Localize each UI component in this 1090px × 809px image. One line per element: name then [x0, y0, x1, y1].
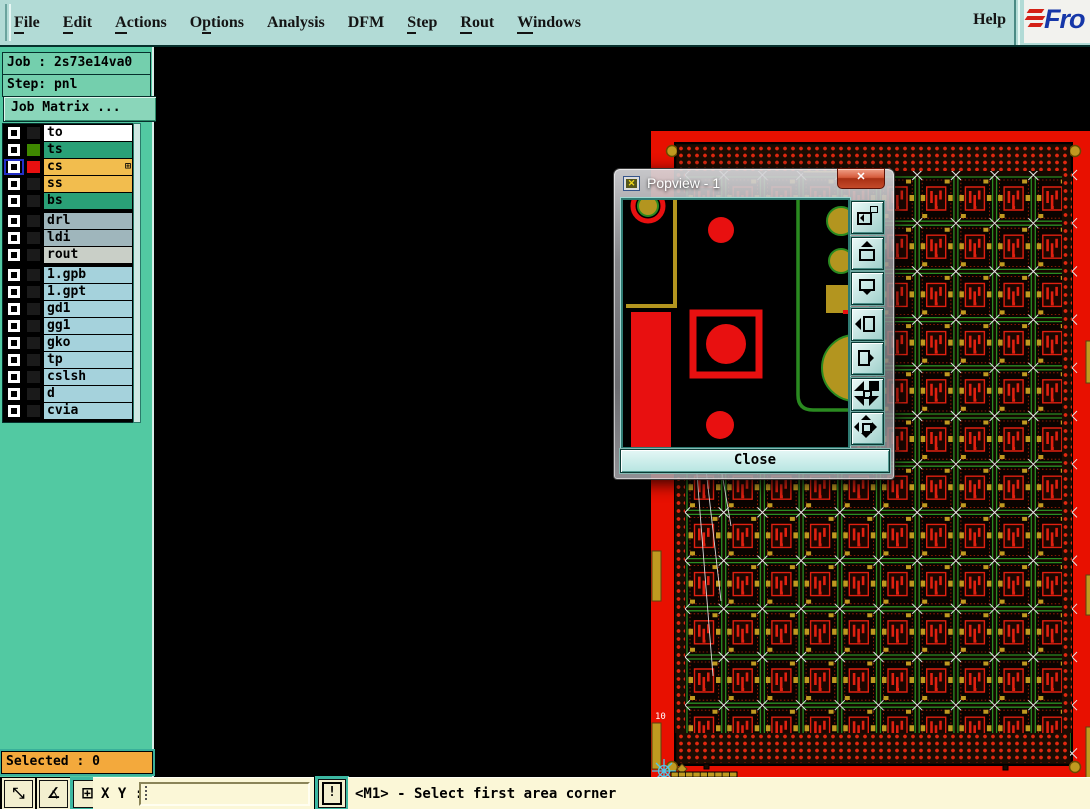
- layer-group: 1.gpb1.gptgd1gg1gkotpcslshdcvia: [4, 267, 132, 421]
- layer-color-swatch[interactable]: [24, 369, 44, 385]
- layer-visibility-checkbox[interactable]: [4, 159, 24, 175]
- measure-angle-button[interactable]: ∡: [39, 780, 68, 808]
- prompt-panel: <M1> - Select first area corner: [348, 777, 1090, 809]
- layer-visibility-checkbox[interactable]: [4, 403, 24, 419]
- layer-row-ss[interactable]: ss: [4, 176, 132, 192]
- layer-row-1.gpt[interactable]: 1.gpt: [4, 284, 132, 300]
- popview-close-button[interactable]: Close: [620, 449, 890, 473]
- layer-name[interactable]: gg1: [44, 318, 132, 334]
- layer-visibility-checkbox[interactable]: [4, 125, 24, 141]
- layer-row-to[interactable]: to: [4, 125, 132, 141]
- layer-row-cslsh[interactable]: cslsh: [4, 369, 132, 385]
- open-in-window-button[interactable]: [851, 201, 884, 234]
- layer-visibility-checkbox[interactable]: [4, 176, 24, 192]
- layer-group: drlldirout: [4, 213, 132, 265]
- job-info-box: Job : 2s73e14va0 Step: pnl: [2, 52, 151, 97]
- pan-up-button[interactable]: [851, 237, 884, 270]
- layer-row-rout[interactable]: rout: [4, 247, 132, 263]
- menu-options[interactable]: Options: [190, 14, 244, 32]
- menu-file[interactable]: File: [14, 14, 40, 32]
- layer-row-drl[interactable]: drl: [4, 213, 132, 229]
- step-label: Step: pnl: [3, 74, 150, 96]
- layer-name[interactable]: 1.gpb: [44, 267, 132, 283]
- layer-visibility-checkbox[interactable]: [4, 386, 24, 402]
- layer-visibility-checkbox[interactable]: [4, 193, 24, 209]
- menu-analysis[interactable]: Analysis: [267, 14, 325, 32]
- layer-name[interactable]: cslsh: [44, 369, 132, 385]
- window-close-icon[interactable]: ✕: [837, 168, 885, 189]
- svg-text:10: 10: [655, 712, 666, 722]
- layer-color-swatch[interactable]: [24, 301, 44, 317]
- prompt-message: <M1> - Select first area corner: [355, 786, 616, 802]
- layer-color-swatch[interactable]: [24, 193, 44, 209]
- layer-group: totscs⊞ssbs: [4, 125, 132, 211]
- popview-title: Popview - 1: [647, 175, 720, 191]
- layer-name[interactable]: cs⊞: [44, 159, 132, 175]
- xy-input[interactable]: [139, 782, 310, 806]
- layer-visibility-checkbox[interactable]: [4, 267, 24, 283]
- layer-name[interactable]: gko: [44, 335, 132, 351]
- xy-input-caret: [145, 786, 147, 800]
- layer-color-swatch[interactable]: [24, 142, 44, 158]
- layer-color-swatch[interactable]: [24, 267, 44, 283]
- layer-name[interactable]: ts: [44, 142, 132, 158]
- popview-window-icon: ✕: [623, 176, 640, 191]
- menu-grip: [5, 4, 11, 41]
- layer-name[interactable]: bs: [44, 193, 132, 209]
- layer-visibility-checkbox[interactable]: [4, 335, 24, 351]
- layer-color-swatch[interactable]: [24, 352, 44, 368]
- layer-row-gd1[interactable]: gd1: [4, 301, 132, 317]
- sidebar: Job : 2s73e14va0 Step: pnl Job Matrix ..…: [0, 47, 154, 777]
- pan-left-button[interactable]: [851, 308, 884, 341]
- layer-color-swatch[interactable]: [24, 386, 44, 402]
- panel-right-coupon-band: [1062, 171, 1072, 733]
- logo-dash: [1027, 9, 1045, 13]
- layer-color-swatch[interactable]: [24, 318, 44, 334]
- logo-dash: [1028, 23, 1044, 27]
- shrink-view-button[interactable]: [851, 378, 884, 411]
- layer-visibility-checkbox[interactable]: [4, 284, 24, 300]
- job-matrix-button[interactable]: Job Matrix ...: [3, 96, 157, 122]
- layer-row-d[interactable]: d: [4, 386, 132, 402]
- coordinate-panel: X Y :: [93, 777, 314, 809]
- layer-color-swatch[interactable]: [24, 403, 44, 419]
- xy-label: X Y :: [101, 786, 143, 802]
- layer-list-scrollbar[interactable]: [133, 123, 141, 423]
- measure-distance-button[interactable]: ⤡: [4, 780, 33, 808]
- menu-items: FileEditActionsOptionsAnalysisDFMStepRou…: [14, 0, 581, 45]
- layer-row-1.gpb[interactable]: 1.gpb: [4, 267, 132, 283]
- logo-text: Fro: [1044, 4, 1085, 35]
- layer-color-swatch[interactable]: [24, 230, 44, 246]
- layer-color-swatch[interactable]: [24, 335, 44, 351]
- layer-row-ldi[interactable]: ldi: [4, 230, 132, 246]
- menu-edit[interactable]: Edit: [63, 14, 92, 32]
- status-bar: ⤡ ∡ ⊞ X Y : ! <M1> - Select first area c…: [0, 777, 1090, 809]
- menu-actions[interactable]: Actions: [115, 14, 167, 32]
- layer-name[interactable]: d: [44, 386, 132, 402]
- layer-name[interactable]: to: [44, 125, 132, 141]
- layer-row-gko[interactable]: gko: [4, 335, 132, 351]
- layer-visibility-checkbox[interactable]: [4, 369, 24, 385]
- layer-row-cs[interactable]: cs⊞: [4, 159, 132, 175]
- menu-rout[interactable]: Rout: [460, 14, 494, 32]
- pan-down-button[interactable]: [851, 272, 884, 305]
- layer-color-swatch[interactable]: [24, 125, 44, 141]
- panel-bottom-coupon-band: [677, 733, 1070, 763]
- layer-name[interactable]: ss: [44, 176, 132, 192]
- layer-visibility-checkbox[interactable]: [4, 213, 24, 229]
- layer-visibility-checkbox[interactable]: [4, 142, 24, 158]
- layer-color-swatch[interactable]: [24, 284, 44, 300]
- menu-dfm[interactable]: DFM: [348, 14, 384, 32]
- layer-name[interactable]: drl: [44, 213, 132, 229]
- layer-name[interactable]: cvia: [44, 403, 132, 419]
- frontline-logo: Fro: [1024, 0, 1090, 43]
- menu-bar: FileEditActionsOptionsAnalysisDFMStepRou…: [0, 0, 1090, 47]
- layer-name[interactable]: ldi: [44, 230, 132, 246]
- layer-visibility-checkbox[interactable]: [4, 230, 24, 246]
- logo-separator: [1014, 0, 1020, 45]
- selected-count: Selected : 0: [1, 751, 153, 774]
- layer-row-bs[interactable]: bs: [4, 193, 132, 209]
- prompt-alert-button[interactable]: !: [318, 779, 346, 808]
- pan-right-button[interactable]: [851, 342, 884, 375]
- layer-row-ts[interactable]: ts: [4, 142, 132, 158]
- logo-dash: [1025, 16, 1046, 20]
- popview-window: ✕ Popview - 1 ✕ Close: [613, 168, 895, 480]
- layer-list: totscs⊞ssbsdrlldirout1.gpb1.gptgd1gg1gko…: [2, 123, 134, 423]
- layer-visibility-checkbox[interactable]: [4, 318, 24, 334]
- layer-row-gg1[interactable]: gg1: [4, 318, 132, 334]
- layer-visibility-checkbox[interactable]: [4, 352, 24, 368]
- menu-windows[interactable]: Windows: [517, 14, 581, 32]
- popview-canvas[interactable]: [621, 198, 850, 449]
- job-label: Job : 2s73e14va0: [3, 53, 150, 74]
- application-window: FileEditActionsOptionsAnalysisDFMStepRou…: [0, 0, 1090, 809]
- menu-help[interactable]: Help: [973, 11, 1006, 29]
- layer-color-swatch[interactable]: [24, 247, 44, 263]
- layer-name[interactable]: gd1: [44, 301, 132, 317]
- layer-row-tp[interactable]: tp: [4, 352, 132, 368]
- layer-color-swatch[interactable]: [24, 159, 44, 175]
- layer-visibility-checkbox[interactable]: [4, 301, 24, 317]
- layer-name[interactable]: rout: [44, 247, 132, 263]
- layer-name[interactable]: 1.gpt: [44, 284, 132, 300]
- layer-visibility-checkbox[interactable]: [4, 247, 24, 263]
- layer-name[interactable]: tp: [44, 352, 132, 368]
- layer-row-cvia[interactable]: cvia: [4, 403, 132, 419]
- menu-step[interactable]: Step: [407, 14, 437, 32]
- popview-titlebar[interactable]: ✕ Popview - 1 ✕: [614, 169, 894, 197]
- layer-context-icon: ⊞: [125, 162, 131, 172]
- layer-color-swatch[interactable]: [24, 176, 44, 192]
- expand-view-button[interactable]: [851, 412, 884, 445]
- layer-color-swatch[interactable]: [24, 213, 44, 229]
